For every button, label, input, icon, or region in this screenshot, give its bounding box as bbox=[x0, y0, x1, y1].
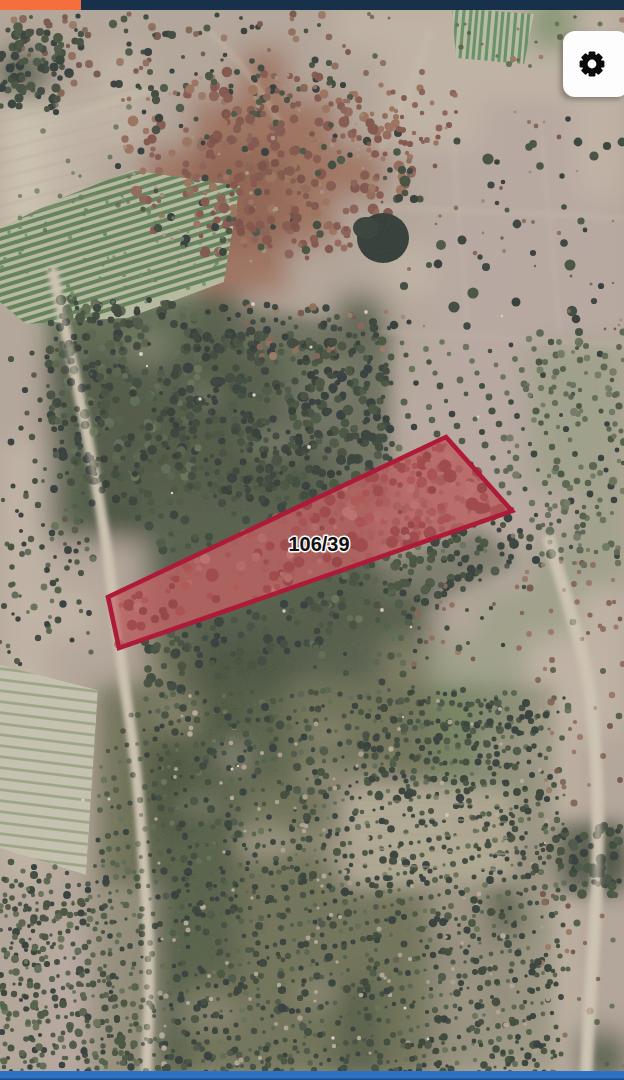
svg-text:106/39: 106/39 bbox=[288, 533, 349, 555]
